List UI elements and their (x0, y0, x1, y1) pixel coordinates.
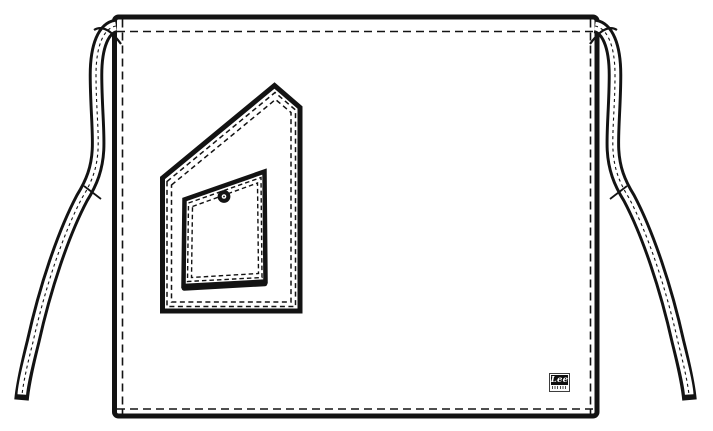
right-tie (590, 26, 690, 400)
rivet-center (223, 196, 225, 198)
brand-label-text: Lee (551, 376, 568, 385)
apron-line-art (0, 0, 713, 431)
rivet (218, 190, 231, 203)
brand-label-fineprint (552, 386, 567, 389)
apron-technical-drawing: Lee (0, 0, 713, 431)
brand-label: Lee (549, 373, 570, 392)
left-tie (22, 26, 122, 400)
brand-label-logo: Lee (551, 375, 568, 385)
